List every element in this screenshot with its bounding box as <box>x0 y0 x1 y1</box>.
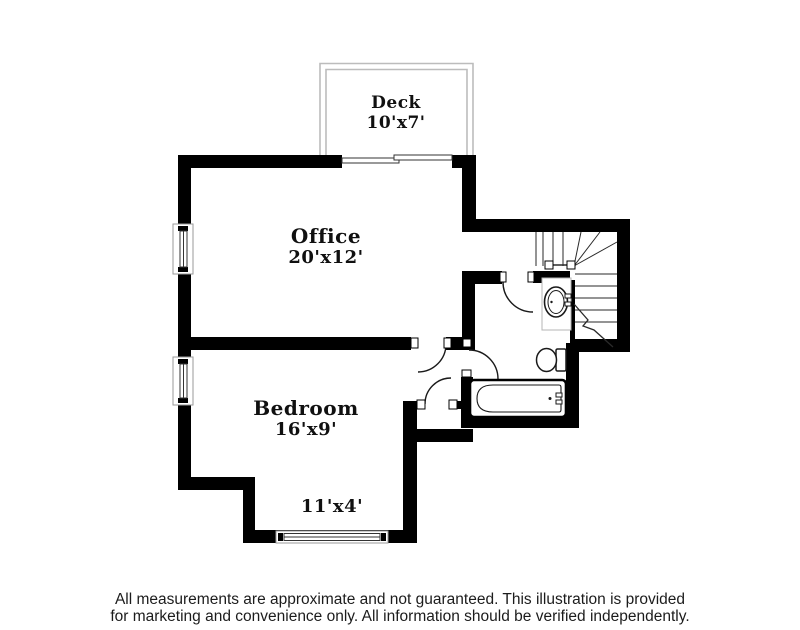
bathtub-faucet-tick <box>556 400 562 404</box>
wall-closet-stub-west <box>403 401 417 409</box>
bathtub-faucet-tick <box>556 393 562 397</box>
bathtub-drain <box>549 397 552 400</box>
toilet-bowl <box>537 349 557 372</box>
wall-nook-right <box>403 401 417 543</box>
room-dims-bedroom: 16'x9' <box>275 419 337 440</box>
room-dims-deck: 10'x7' <box>366 113 425 133</box>
floor-plan-canvas: Deck 10'x7' Office 20'x12' Bedroom 16'x9… <box>0 0 800 630</box>
room-label-office: Office <box>291 224 361 248</box>
wall-left <box>178 155 191 490</box>
sliding-door <box>342 153 452 169</box>
sink-faucet-tick <box>565 302 571 306</box>
toilet-tank <box>556 349 566 371</box>
wall-hall-top-west <box>462 271 502 284</box>
sink-faucet-tick <box>565 294 571 298</box>
disclaimer-line-1: All measurements are approximate and not… <box>115 591 685 608</box>
sliding-door-panel-left <box>342 158 399 163</box>
room-label-bedroom: Bedroom <box>253 396 359 420</box>
door-arc-office-vestibule <box>418 344 446 372</box>
disclaimer-line-2: for marketing and convenience only. All … <box>110 608 689 625</box>
wall-step-horizontal <box>178 477 255 490</box>
window-office-left <box>173 224 193 274</box>
wall-right-exterior <box>617 219 630 352</box>
door-arc-closet <box>425 378 451 404</box>
window-bedroom-left <box>173 357 193 405</box>
window-nook-bottom <box>276 531 388 543</box>
sliding-door-panel-right <box>394 155 452 160</box>
wall-divider-office-bedroom <box>178 337 411 350</box>
door-arc-bathroom-inner <box>469 350 498 379</box>
room-dims-nook: 11'x4' <box>301 496 363 517</box>
toilet-icon <box>537 349 567 372</box>
door-arc-bath-entry <box>503 282 533 312</box>
room-label-deck: Deck <box>371 93 421 113</box>
floor-plan-page: Deck 10'x7' Office 20'x12' Bedroom 16'x9… <box>0 0 800 630</box>
bathtub-icon <box>470 380 566 417</box>
wall-stair-top <box>462 219 630 232</box>
room-dims-office: 20'x12' <box>288 247 363 268</box>
